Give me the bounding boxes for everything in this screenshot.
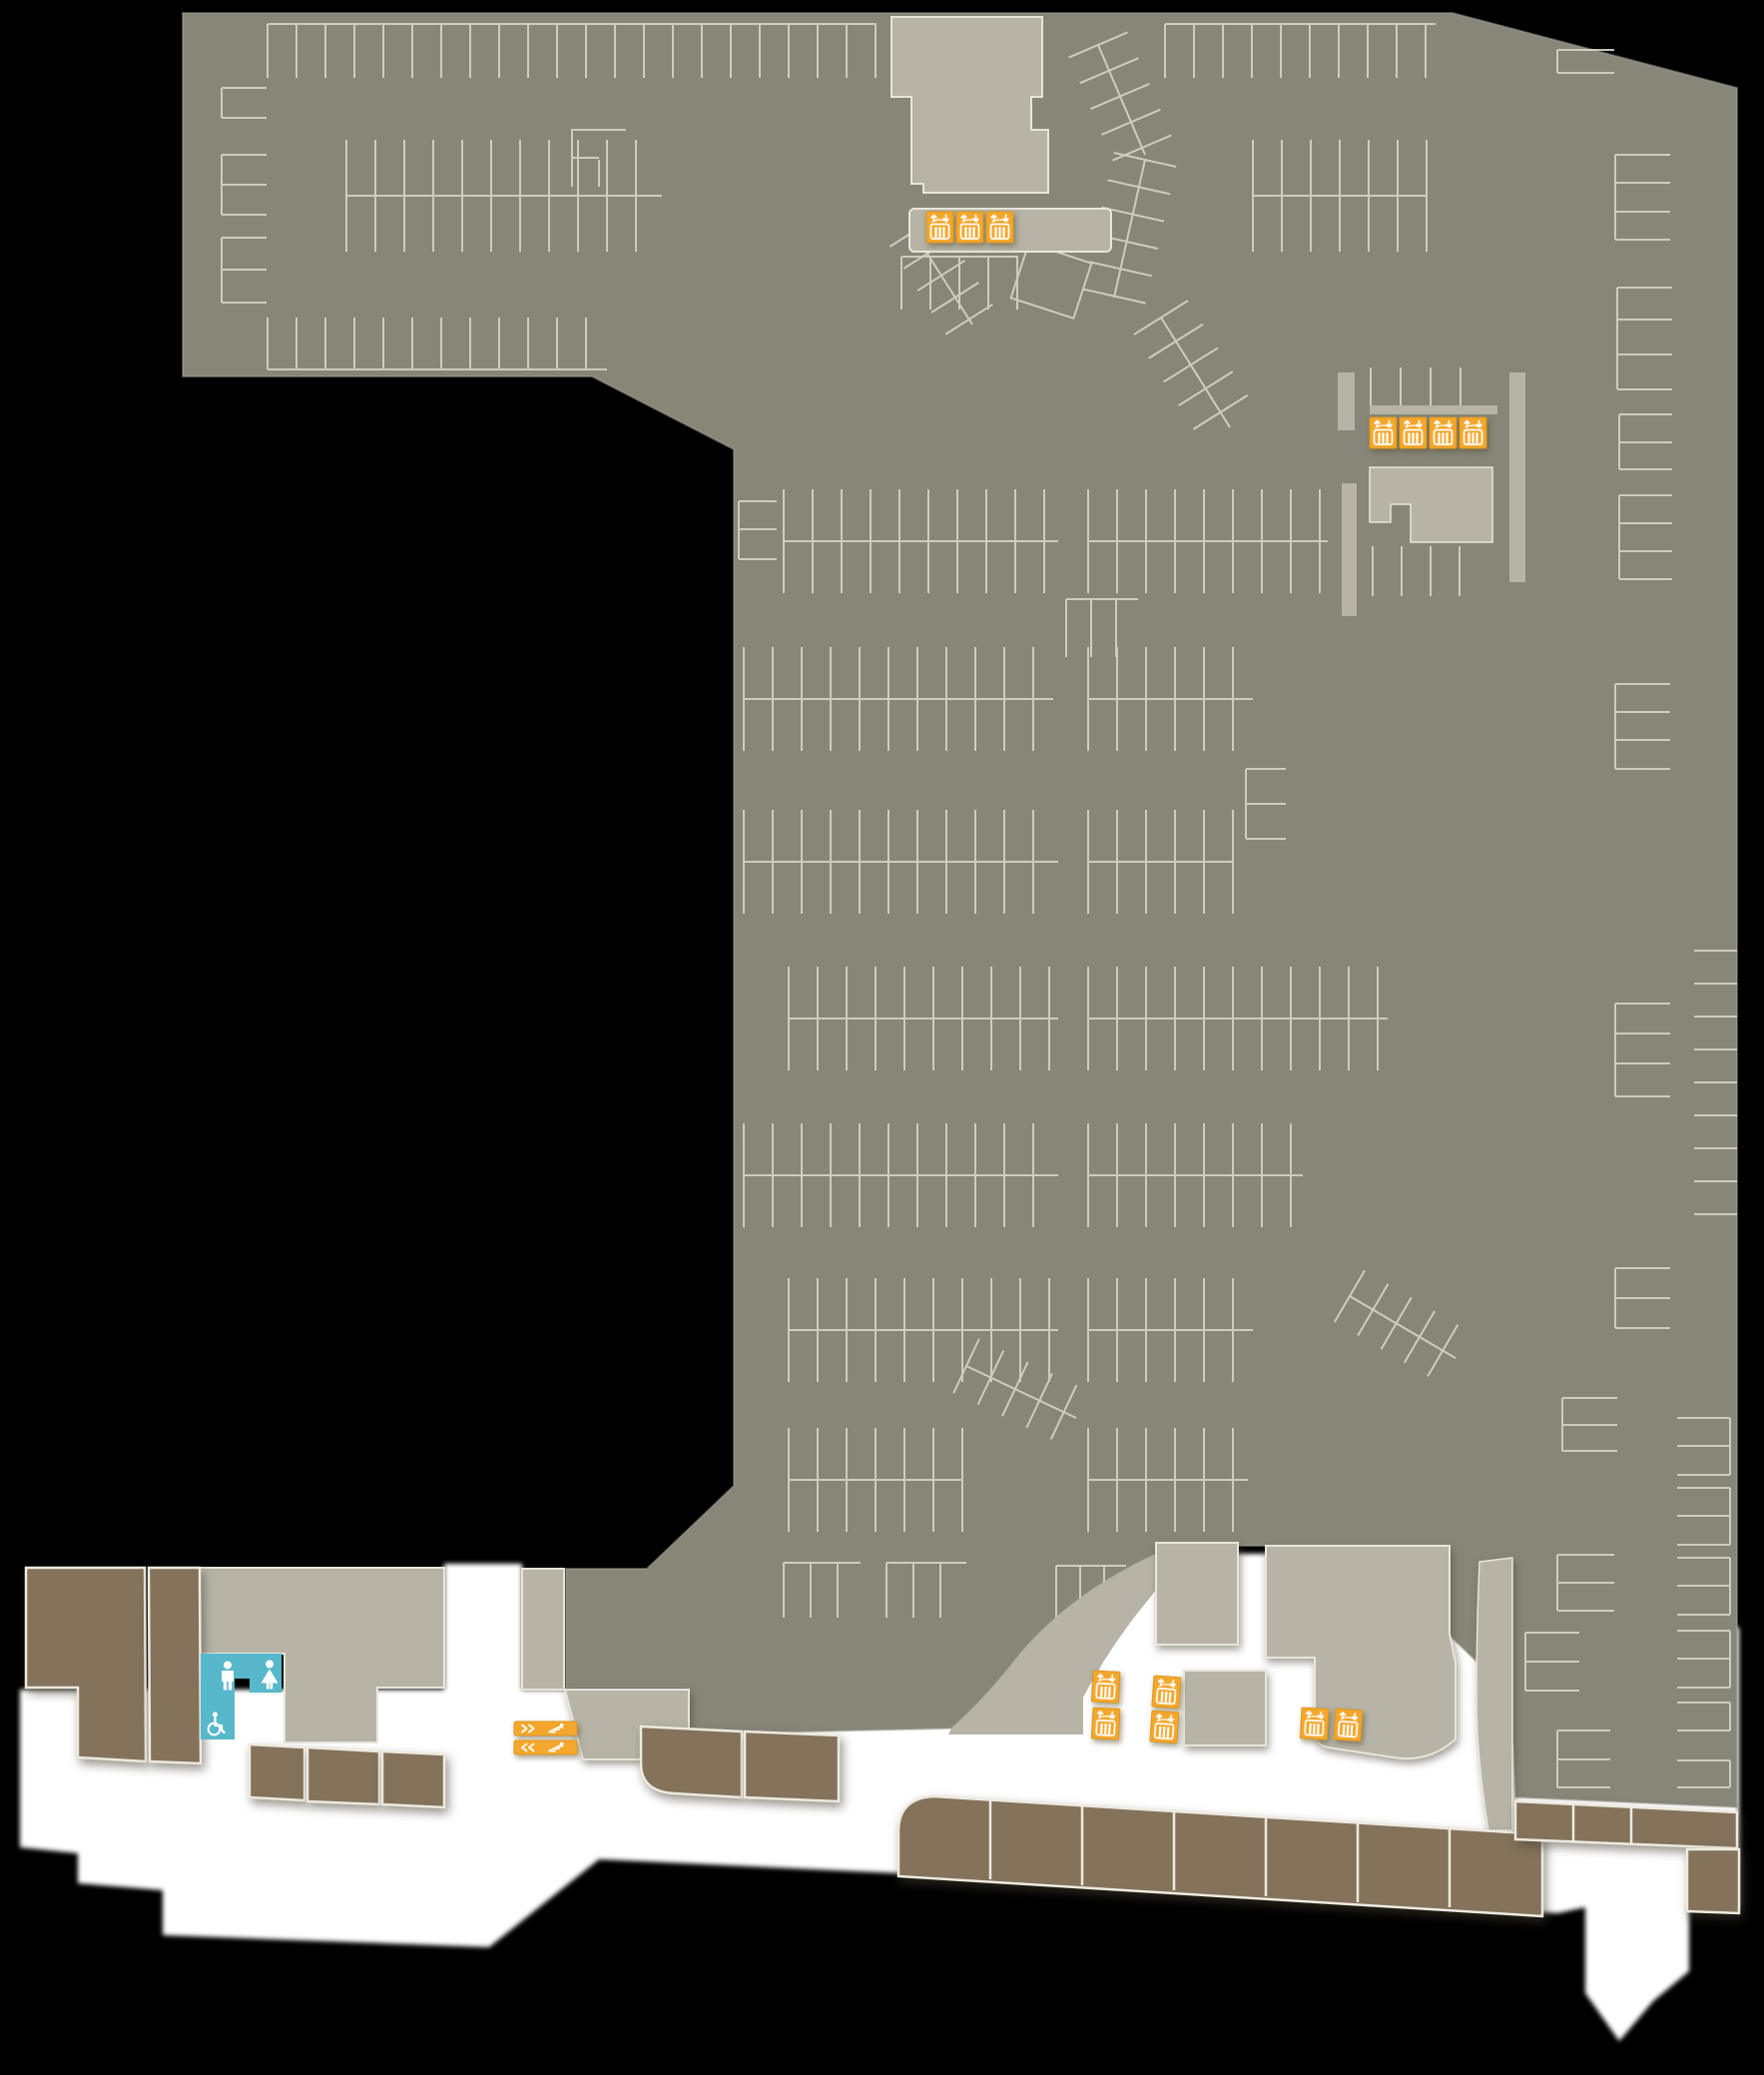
pillar <box>1509 372 1525 582</box>
parking-level-map <box>0 0 1764 2075</box>
woman-leg <box>267 1684 270 1690</box>
wheelchair-head <box>213 1713 218 1718</box>
elevator-icon[interactable] <box>1150 1711 1179 1743</box>
parking-map-canvas <box>0 0 1764 2075</box>
man-head <box>224 1662 232 1670</box>
store-unit <box>149 1568 201 1763</box>
elevator-icon[interactable] <box>1400 417 1427 448</box>
elevator-icon[interactable] <box>1370 417 1397 448</box>
store-unit <box>1687 1849 1739 1913</box>
elevator-icon[interactable] <box>1091 1708 1120 1739</box>
escalator-rider <box>560 1724 563 1727</box>
walkway-strip <box>522 1569 564 1690</box>
elevator-lobby-east <box>1370 405 1497 414</box>
elevator-icon[interactable] <box>1300 1708 1329 1739</box>
store-unit <box>382 1751 444 1807</box>
mall-block <box>1476 1558 1512 1830</box>
elevator-icon[interactable] <box>1152 1676 1181 1709</box>
elevator-icon[interactable] <box>986 212 1013 243</box>
woman-leg <box>270 1684 273 1690</box>
store-unit <box>250 1744 304 1800</box>
store-unit <box>745 1731 839 1801</box>
structure-top <box>891 17 1048 193</box>
elevator-icon[interactable] <box>1334 1709 1363 1741</box>
pillar <box>1342 483 1357 616</box>
woman-head <box>266 1661 274 1669</box>
escalator-icon[interactable] <box>514 1740 577 1754</box>
man-body <box>222 1671 234 1682</box>
mall-block <box>1156 1543 1238 1645</box>
store-unit <box>307 1747 379 1804</box>
pillar <box>1338 372 1355 430</box>
escalator-icon-bg <box>514 1722 577 1735</box>
escalator-icon[interactable] <box>514 1722 577 1735</box>
store-unit <box>641 1727 742 1797</box>
elevator-icon[interactable] <box>956 212 983 243</box>
mall-block <box>1184 1671 1266 1745</box>
man-leg <box>229 1682 232 1691</box>
elevator-icon[interactable] <box>926 212 953 243</box>
elevator-icon[interactable] <box>1460 417 1486 448</box>
man-leg <box>224 1682 227 1691</box>
elevator-icon[interactable] <box>1430 417 1457 448</box>
escalator-rider <box>560 1742 563 1745</box>
elevator-icon[interactable] <box>1091 1671 1120 1703</box>
